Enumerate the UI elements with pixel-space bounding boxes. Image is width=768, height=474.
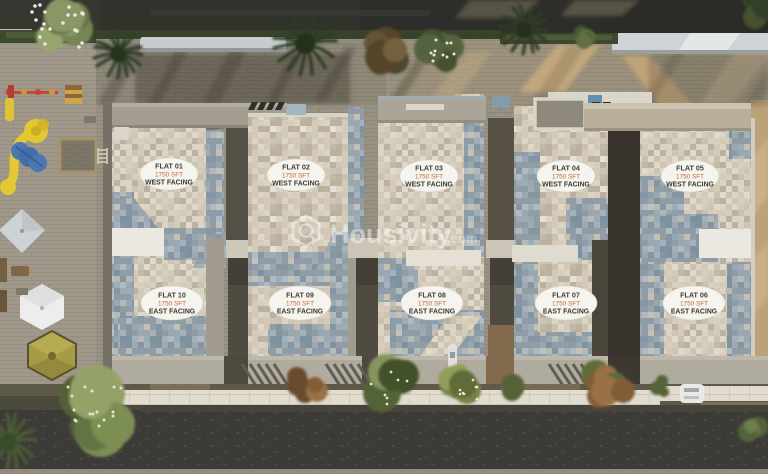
svg-text:Housivity: Housivity <box>330 219 452 249</box>
svg-text:.com: .com <box>447 231 477 246</box>
